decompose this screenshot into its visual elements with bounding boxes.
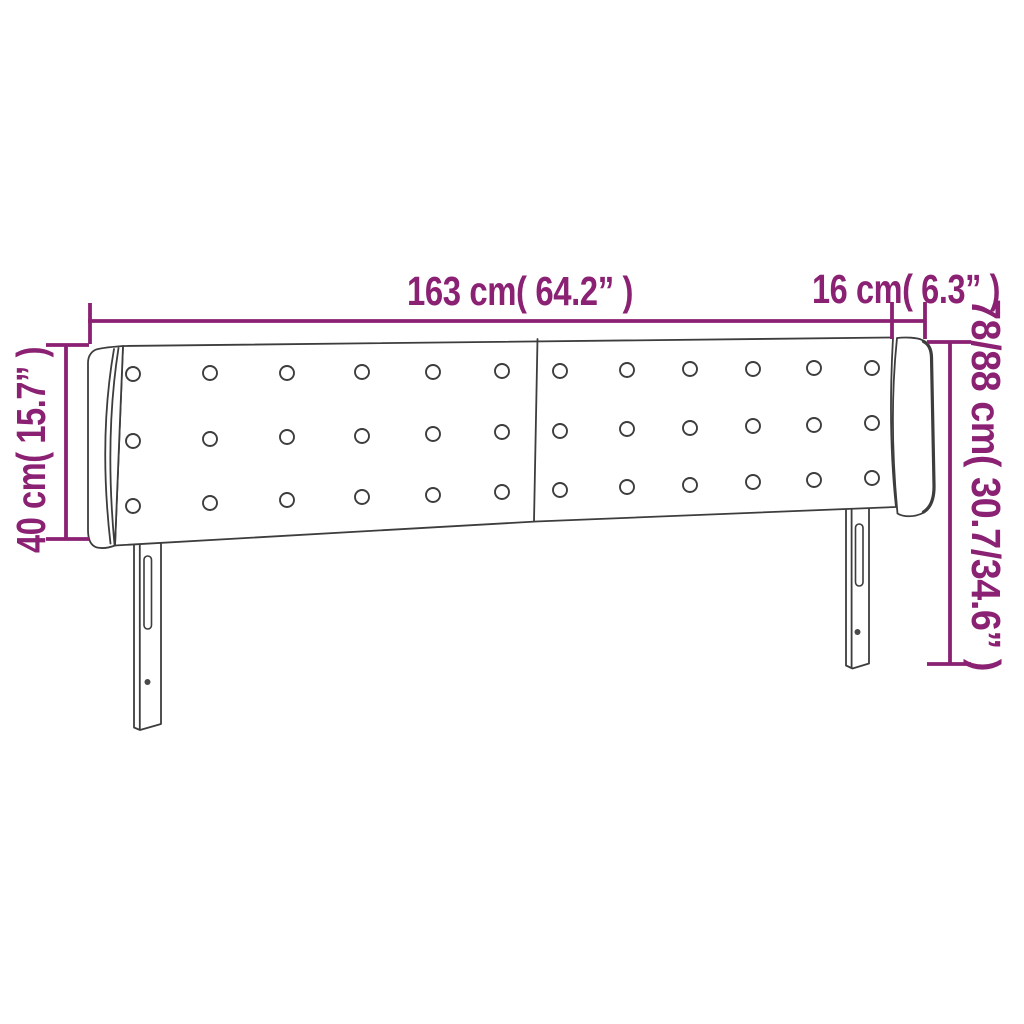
button-tuft bbox=[355, 365, 369, 379]
button-tuft bbox=[865, 361, 879, 375]
button-tuft bbox=[683, 421, 697, 435]
button-tuft bbox=[553, 424, 567, 438]
button-tuft bbox=[683, 362, 697, 376]
left-leg-body bbox=[134, 539, 161, 730]
button-tuft bbox=[126, 434, 140, 448]
left-leg-hole bbox=[145, 679, 151, 685]
button-tuft bbox=[426, 365, 440, 379]
button-tuft bbox=[553, 483, 567, 497]
label-panel-height: 40 cm( 15.7” ) bbox=[8, 347, 54, 553]
button-tuft bbox=[355, 429, 369, 443]
button-tuft bbox=[280, 366, 294, 380]
button-tuft bbox=[280, 430, 294, 444]
left-leg bbox=[134, 539, 161, 730]
button-tuft bbox=[746, 362, 760, 376]
button-tuft bbox=[495, 364, 509, 378]
button-tuft bbox=[683, 478, 697, 492]
button-tuft bbox=[126, 367, 140, 381]
right-leg bbox=[846, 503, 869, 669]
button-tuft bbox=[553, 364, 567, 378]
button-tuft bbox=[280, 493, 294, 507]
button-tuft bbox=[203, 366, 217, 380]
button-tuft bbox=[620, 480, 634, 494]
button-tuft bbox=[495, 425, 509, 439]
button-tuft bbox=[865, 471, 879, 485]
button-tuft bbox=[620, 363, 634, 377]
button-tuft bbox=[807, 473, 821, 487]
right-wing-body bbox=[893, 338, 934, 517]
label-total-height: 78/88 cm( 30.7/34.6” ) bbox=[963, 299, 1009, 671]
button-tuft bbox=[126, 499, 140, 513]
button-tuft bbox=[203, 432, 217, 446]
headboard-panel bbox=[88, 338, 934, 549]
button-tuft bbox=[620, 422, 634, 436]
button-tuft bbox=[355, 490, 369, 504]
button-tuft bbox=[746, 475, 760, 489]
diagram-canvas: 163 cm( 64.2” ) 16 cm( 6.3” ) 40 cm( 15.… bbox=[0, 0, 1024, 1024]
button-tuft bbox=[495, 485, 509, 499]
right-leg-hole bbox=[855, 629, 861, 635]
button-tuft bbox=[426, 488, 440, 502]
button-tuft bbox=[746, 419, 760, 433]
label-total-width: 163 cm( 64.2” ) bbox=[407, 268, 633, 314]
button-tuft bbox=[807, 418, 821, 432]
button-tuft bbox=[426, 427, 440, 441]
right-wing bbox=[893, 338, 934, 517]
headboard-dimension-diagram: 163 cm( 64.2” ) 16 cm( 6.3” ) 40 cm( 15.… bbox=[0, 0, 1024, 1024]
button-tuft bbox=[203, 496, 217, 510]
button-tuft bbox=[807, 361, 821, 375]
button-tuft bbox=[865, 416, 879, 430]
